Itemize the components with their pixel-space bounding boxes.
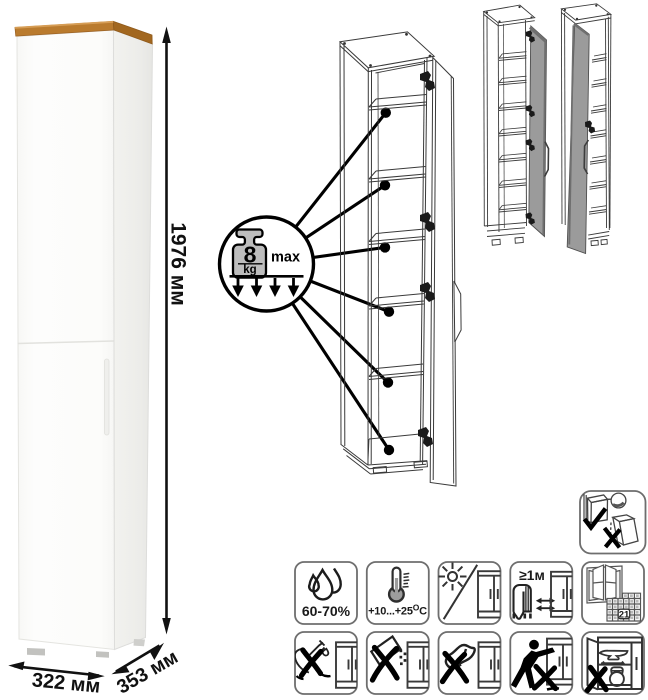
svg-text:≥1м: ≥1м — [519, 567, 545, 583]
svg-text:+10...+25OC: +10...+25OC — [368, 603, 427, 618]
svg-text:max: max — [271, 250, 300, 266]
svg-text:1976 мм: 1976 мм — [167, 222, 190, 306]
svg-text:21: 21 — [619, 609, 630, 620]
svg-text:60-70%: 60-70% — [302, 603, 351, 619]
svg-text:kg: kg — [243, 264, 256, 276]
